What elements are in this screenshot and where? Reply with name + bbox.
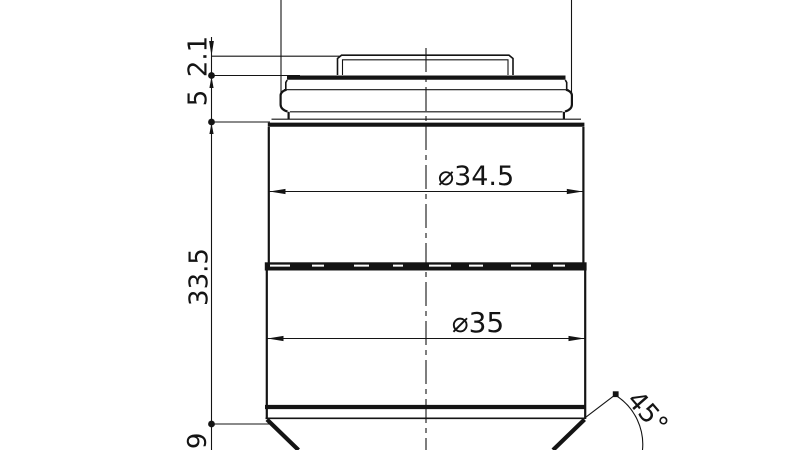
knurl-band xyxy=(265,262,587,270)
dim-dot-body-top xyxy=(208,119,215,126)
dim-2-1-label: 2.1 xyxy=(184,36,214,77)
flange-side-right xyxy=(565,80,566,89)
angle-leader-line xyxy=(584,395,616,419)
dim-33-5-label: 33.5 xyxy=(185,248,215,306)
dim-diameter-35-label: ⌀35 xyxy=(452,306,505,339)
bulge-profile-right xyxy=(565,90,572,112)
objective-lens-drawing: 2.1 5 33.5 .9 ⌀34.5 ⌀35 45° xyxy=(0,0,800,450)
technical-drawing-canvas: 2.1 5 33.5 .9 ⌀34.5 ⌀35 45° xyxy=(0,0,800,450)
cap-inner-rim xyxy=(343,60,509,75)
arrow-left-34-5 xyxy=(270,189,286,194)
arrow-right-34-5 xyxy=(567,189,583,194)
arrow-left-35 xyxy=(268,336,284,341)
dim-bottom-partial-label: .9 xyxy=(183,433,213,450)
left-dimension-chain: 2.1 5 33.5 .9 xyxy=(183,36,340,450)
nose-chamfer-right xyxy=(553,420,585,450)
dim-diameter-34-5-label: ⌀34.5 xyxy=(438,161,514,192)
bulge-profile-left xyxy=(281,90,288,112)
dim-5-label: 5 xyxy=(184,90,214,107)
flange-side-left xyxy=(286,80,287,89)
lower-body-cylinder xyxy=(265,271,586,450)
cap-outline xyxy=(338,55,514,75)
dimension-chamfer-angle: 45° xyxy=(584,386,673,450)
arrow-right-35 xyxy=(569,336,585,341)
dim-45deg-label: 45° xyxy=(621,386,674,440)
dim-dot-body-bottom xyxy=(208,421,215,428)
nose-chamfer-left xyxy=(267,420,299,450)
